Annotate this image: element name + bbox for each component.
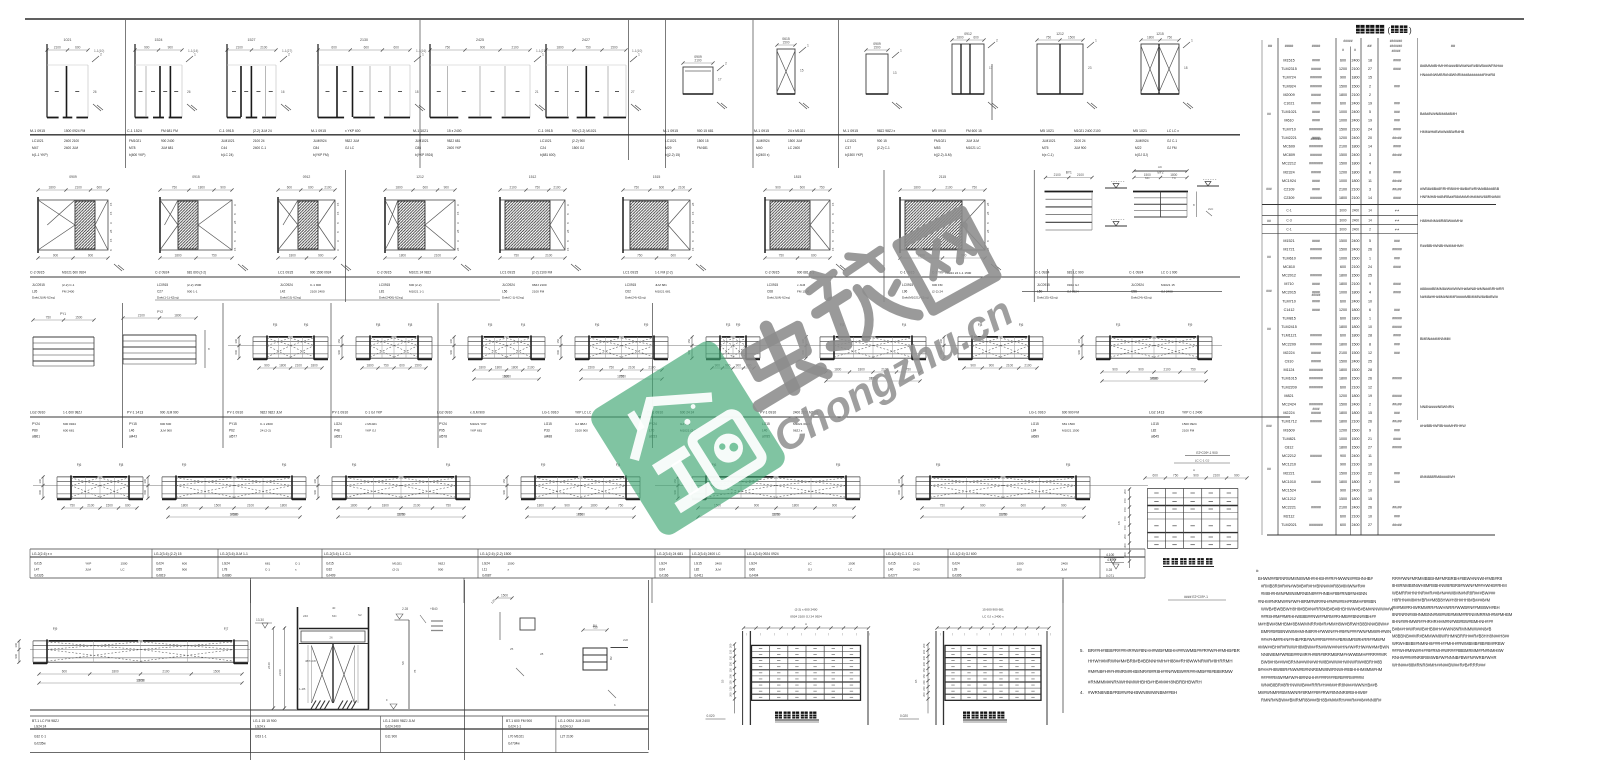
- svg-text:1500: 1500: [1352, 377, 1360, 381]
- svg-text:600: 600: [308, 186, 314, 190]
- svg-text:1500: 1500: [121, 562, 128, 566]
- svg-text:600: 600: [897, 490, 901, 495]
- svg-text:18: 18: [1184, 66, 1188, 70]
- svg-text:B#8#8W#N8M#8#8MH: B#8#8W#N8M#8#8MH: [1420, 112, 1457, 116]
- svg-text:28: 28: [109, 229, 113, 233]
- svg-text:BMR#B#B8NWWMHMHN8R#H#WWN##H#8#: BMR#B#B8NWWMHMHN8R#H#WWN##H#8#N####WN#MM…: [1261, 629, 1391, 634]
- svg-text:150: 150: [1123, 516, 1127, 521]
- svg-text:M2112: M2112: [1283, 514, 1294, 518]
- svg-text:JLM 900: JLM 900: [160, 428, 172, 432]
- svg-text:M47: M47: [32, 146, 39, 150]
- svg-text:#####: #####: [1392, 446, 1402, 450]
- svg-text:0.020: 0.020: [900, 714, 908, 718]
- svg-text:C910: C910: [1285, 360, 1294, 364]
- svg-text:######: ######: [1310, 153, 1322, 157]
- svg-text:40: 40: [332, 606, 336, 610]
- svg-text:150: 150: [729, 680, 733, 685]
- svg-text:1500: 1500: [214, 504, 221, 508]
- svg-text:PY24: PY24: [32, 422, 40, 426]
- svg-text:L82: L82: [694, 568, 700, 572]
- svg-text:1800: 1800: [1339, 377, 1347, 381]
- svg-text:150: 150: [337, 339, 341, 344]
- svg-text:600: 600: [394, 46, 400, 50]
- svg-text:C-1 0924: C-1 0924: [1035, 271, 1049, 275]
- svg-text:1800: 1800: [1339, 274, 1347, 278]
- svg-text:#####: #####: [1392, 248, 1402, 252]
- svg-text:Dwb(24)-f(2xq): Dwb(24)-f(2xq): [1131, 296, 1152, 300]
- svg-text:2400: 2400: [1352, 523, 1360, 527]
- svg-text:C1021: C1021: [1284, 102, 1295, 106]
- svg-text:LC0915: LC0915: [767, 283, 778, 287]
- svg-text:C44: C44: [221, 146, 227, 150]
- svg-text:###: ###: [1394, 308, 1400, 312]
- svg-text:JLM 681: JLM 681: [161, 146, 173, 150]
- svg-text:15: 15: [831, 247, 835, 251]
- svg-text:MC2015: MC2015: [1282, 291, 1296, 295]
- svg-text:MC1212: MC1212: [1282, 497, 1296, 501]
- svg-text:22: 22: [1368, 471, 1372, 475]
- svg-text:1800: 1800: [350, 504, 357, 508]
- svg-text:681 LC 900: 681 LC 900: [1067, 271, 1084, 275]
- svg-text:F|9: F|9: [644, 323, 649, 327]
- svg-text:LC0915: LC0915: [902, 283, 913, 287]
- svg-text:10: 10: [1368, 514, 1372, 518]
- svg-text:###: ###: [1394, 119, 1400, 123]
- svg-text:C-2 0924: C-2 0924: [155, 271, 169, 275]
- svg-text:24: 24: [1368, 127, 1372, 131]
- svg-text:4: 4: [1369, 162, 1371, 166]
- svg-text:GJ C-1: GJ C-1: [1167, 139, 1177, 143]
- svg-text:15: 15: [233, 247, 237, 251]
- svg-text:F|4: F|4: [446, 463, 451, 467]
- svg-text:1515: 1515: [653, 175, 661, 179]
- svg-text:L40: L40: [888, 568, 894, 572]
- svg-text:28: 28: [986, 211, 990, 215]
- svg-text:C-3: C-3: [1286, 219, 1291, 223]
- svg-text:1800: 1800: [956, 36, 963, 40]
- svg-text:M1021 600 0924: M1021 600 0924: [62, 271, 86, 275]
- svg-text:2640: 2640: [267, 662, 271, 669]
- svg-text:12: 12: [1368, 351, 1372, 355]
- svg-text:C-1 900: C-1 900: [310, 283, 321, 287]
- svg-text:681: 681: [265, 562, 270, 566]
- svg-text:LG24: LG24: [482, 562, 490, 566]
- svg-text:Dwb(1-1)-f(2xq): Dwb(1-1)-f(2xq): [157, 296, 179, 300]
- svg-text:####: ####: [1312, 299, 1320, 303]
- svg-text:2100: 2100: [1352, 67, 1360, 71]
- svg-text:25: 25: [510, 647, 514, 651]
- svg-text:750: 750: [972, 186, 978, 190]
- svg-text:2400: 2400: [1352, 360, 1360, 364]
- svg-text:1800: 1800: [1339, 411, 1347, 415]
- svg-text:###: ###: [1394, 428, 1400, 432]
- svg-text:###: ###: [1394, 342, 1400, 346]
- svg-text:C-1 GJ YKP: C-1 GJ YKP: [365, 411, 382, 415]
- svg-text:600: 600: [1340, 334, 1346, 338]
- svg-text:(2-2) 2100 FM: (2-2) 2100 FM: [532, 271, 553, 275]
- svg-text:1800: 1800: [1339, 325, 1347, 329]
- svg-text:TLM815: TLM815: [1282, 317, 1296, 321]
- svg-text:1: 1: [422, 53, 424, 57]
- svg-text:C-1: C-1: [295, 562, 300, 566]
- svg-text:27: 27: [1368, 67, 1372, 71]
- svg-text:2100: 2100: [1339, 506, 1347, 510]
- svg-text:2100: 2100: [1163, 368, 1170, 372]
- svg-text:681 1500: 681 1500: [1062, 422, 1075, 426]
- svg-text:150: 150: [729, 686, 733, 691]
- svg-text:##H#HM#RHN##HB#RB#WN##R8####H#: ##H#HM#RHN##HB#RB#WN##R8####H#BRMMR8RHRR…: [1261, 637, 1386, 642]
- svg-text:600: 600: [62, 670, 68, 674]
- svg-text:####: ####: [1393, 265, 1401, 269]
- svg-text:####: ####: [1312, 179, 1320, 183]
- svg-text:G66: G66: [749, 568, 755, 572]
- svg-text:2100: 2100: [236, 46, 243, 50]
- svg-text:2100: 2100: [434, 254, 441, 258]
- svg-text:TLM1015: TLM1015: [1281, 377, 1297, 381]
- svg-text:900 600: 900 600: [160, 422, 171, 426]
- svg-text:1000: 1000: [1339, 291, 1347, 295]
- svg-text:600: 600: [75, 46, 81, 50]
- svg-text:TLM924: TLM924: [1282, 84, 1296, 88]
- svg-text:2100: 2100: [1006, 364, 1013, 368]
- svg-text:JLM JLM: JLM JLM: [966, 139, 979, 143]
- svg-text:2100: 2100: [1352, 188, 1360, 192]
- svg-text:150: 150: [729, 655, 733, 660]
- svg-text:750: 750: [1173, 474, 1179, 478]
- svg-text:1500: 1500: [1352, 84, 1360, 88]
- svg-text:M8BBNB##MR#BMMWM8WRHMNBRRH##R#: M8BBNB##MR#BMMWM8WRHMNBRRH##R#B8HH8N##H8…: [1392, 634, 1510, 639]
- svg-text:900: 900: [502, 490, 506, 495]
- svg-text:150: 150: [1123, 507, 1127, 512]
- svg-text:LG24: LG24: [334, 422, 342, 426]
- svg-text:600: 600: [399, 364, 405, 368]
- svg-text:BT-1 LC FM 98ZJ: BT-1 LC FM 98ZJ: [32, 719, 59, 723]
- svg-text:150: 150: [502, 479, 506, 484]
- svg-text:20: 20: [1368, 136, 1372, 140]
- svg-text:######: ######: [1310, 274, 1322, 278]
- svg-text:LG-2(3-6) JLM 1-1: LG-2(3-6) JLM 1-1: [220, 552, 248, 556]
- svg-text:L84: L84: [1031, 428, 1037, 432]
- svg-text:21: 21: [535, 90, 539, 94]
- svg-text:16200: 16200: [502, 375, 511, 379]
- svg-text:15: 15: [336, 202, 340, 206]
- svg-text:18: 18: [415, 90, 419, 94]
- svg-text:1000: 1000: [1339, 256, 1347, 260]
- svg-text:900 JLM 900: 900 JLM 900: [160, 411, 179, 415]
- svg-text:2: 2: [996, 39, 998, 43]
- svg-text:2400: 2400: [1352, 102, 1360, 106]
- svg-text:2400: 2400: [1352, 299, 1360, 303]
- svg-text:##: ##: [1267, 255, 1271, 259]
- svg-text:###: ###: [1394, 239, 1400, 243]
- svg-text:LG-2(2-6) x x: LG-2(2-6) x x: [32, 552, 52, 556]
- svg-text:B#8##H#WR#WB#HB8#H#WWN8NRMNMWW: B#8##H#WR#WB#HB8#H#WWN8NRMNMWW#N8#B: [1392, 626, 1492, 631]
- svg-text:27: 27: [1368, 523, 1372, 527]
- svg-text:LG-1 15 15 900: LG-1 15 15 900: [253, 719, 277, 723]
- svg-text:1000: 1000: [1339, 437, 1347, 441]
- svg-text:##: ##: [1267, 219, 1271, 223]
- svg-text:26: 26: [93, 90, 97, 94]
- svg-text:C-1: C-1: [1286, 209, 1291, 213]
- svg-text:24 (2-2): 24 (2-2): [260, 428, 271, 432]
- svg-text:2100: 2100: [527, 366, 534, 370]
- svg-text:x YKP 600: x YKP 600: [345, 129, 361, 133]
- svg-text:2100: 2100: [553, 186, 560, 190]
- svg-text:2400: 2400: [1352, 119, 1360, 123]
- svg-text:GJ277: GJ277: [888, 574, 898, 578]
- svg-text:15 x 2400: 15 x 2400: [447, 129, 462, 133]
- svg-text:L96: L96: [902, 289, 908, 293]
- svg-text:S2: S2: [358, 613, 362, 617]
- svg-text:9: 9: [1369, 282, 1371, 286]
- svg-text:LG24: LG24: [659, 562, 667, 566]
- svg-text:M#HBW#8MHBM#8BNWMNRR#8#R#MMH8W: M#HBW#8MHBM#8BNWMNRR#8#R#MMH8W#BRWHB8BNN…: [1258, 622, 1389, 627]
- svg-text:Dwb(JLM)-f(2xq): Dwb(JLM)-f(2xq): [767, 296, 790, 300]
- svg-text:1800: 1800: [1352, 76, 1360, 80]
- svg-text:1800: 1800: [1352, 291, 1360, 295]
- svg-text:FM1021: FM1021: [934, 139, 946, 143]
- svg-text:####: ####: [1393, 59, 1401, 63]
- svg-text:F|5: F|5: [836, 463, 841, 467]
- svg-text:8#8MM#BHMHHN###BWM#N#R#BWB##WR: 8#8MM#BHMHHN###BWM#N#R#BWB##WRNH##: [1420, 64, 1503, 68]
- svg-text:H88H#NM#8R8BW##MH#: H88H#NM#8R8BW##MH#: [1420, 219, 1463, 223]
- svg-text:##x##: ##x##: [1392, 179, 1401, 183]
- svg-text:600: 600: [1153, 474, 1159, 478]
- svg-text:M1521: M1521: [1283, 239, 1294, 243]
- svg-text:######: ######: [1310, 196, 1322, 200]
- svg-text:GJ411: GJ411: [694, 574, 703, 578]
- svg-text:1500: 1500: [75, 316, 82, 320]
- svg-text:150: 150: [556, 339, 560, 344]
- svg-text:M2009: M2009: [1283, 93, 1294, 97]
- svg-text:78: 78: [413, 669, 417, 673]
- svg-text:C812: C812: [1285, 446, 1294, 450]
- svg-text:750: 750: [1190, 368, 1196, 372]
- svg-text:LC1 0915: LC1 0915: [623, 271, 638, 275]
- svg-text:600: 600: [1017, 568, 1022, 572]
- svg-text:#####: #####: [1392, 377, 1402, 381]
- svg-text:2100: 2100: [1352, 93, 1360, 97]
- svg-text:600: 600: [97, 186, 103, 190]
- svg-text:1500: 1500: [1068, 36, 1075, 40]
- svg-text:28: 28: [986, 202, 990, 206]
- svg-text:1500: 1500: [1352, 342, 1360, 346]
- svg-text:1200: 1200: [1339, 428, 1347, 432]
- svg-text:M29: M29: [665, 146, 672, 150]
- svg-text:PY1: PY1: [60, 312, 66, 316]
- svg-text:M8#WNMR#BMNWNR#8RM##8##RW#8NNN: M8#WNMR#BMNWNR#8RM##8##RW#8NNNR8#BHHW8#: [1258, 690, 1368, 695]
- svg-text:M1021 681: M1021 681: [655, 289, 671, 293]
- svg-text:WHN###88MRNR8#MH##N##BW##R#B#R: WHN###88MRNR8#MH##N##BW##R#B#RRR###: [1392, 662, 1486, 667]
- svg-text:200: 200: [729, 674, 733, 679]
- svg-text:P80: P80: [32, 428, 38, 432]
- svg-text:F|9: F|9: [1188, 323, 1193, 327]
- svg-text:600: 600: [1340, 299, 1346, 303]
- svg-text:M1609: M1609: [1283, 428, 1294, 432]
- svg-text:F|6: F|6: [304, 323, 309, 327]
- svg-text:###: ###: [1394, 480, 1400, 484]
- svg-text:HHWH#MRWN#M#BR8#B#BBNNHMH#H88#: HHWH#MRWN#M#BR8#B#BBNNHMH#H88##RH8WWNRWR…: [1088, 659, 1233, 664]
- svg-text:13750: 13750: [397, 513, 406, 517]
- svg-text:PY15: PY15: [129, 422, 137, 426]
- svg-text:F|8: F|8: [119, 463, 124, 467]
- svg-text:L81: L81: [379, 289, 385, 293]
- svg-text:1: 1: [1369, 256, 1371, 260]
- svg-text:1800: 1800: [1147, 36, 1154, 40]
- svg-text:C56: C56: [1131, 289, 1137, 293]
- svg-text:FM 681 FM: FM 681 FM: [161, 129, 178, 133]
- svg-text:1800: 1800: [1352, 325, 1360, 329]
- svg-text:26: 26: [1368, 506, 1372, 510]
- svg-text:1: 1: [900, 49, 902, 53]
- svg-text:PY-1 0910: PY-1 0910: [332, 411, 348, 415]
- svg-text:26: 26: [1368, 377, 1372, 381]
- svg-text:2100: 2100: [1352, 471, 1360, 475]
- svg-text:G24: G24: [659, 568, 665, 572]
- svg-text:26: 26: [1368, 248, 1372, 252]
- svg-text:####: ####: [1312, 308, 1320, 312]
- svg-text:GJ235w: GJ235w: [34, 742, 46, 746]
- svg-text:MC809: MC809: [1283, 153, 1295, 157]
- svg-text:M610: M610: [1284, 119, 1293, 123]
- svg-text:TLM2221: TLM2221: [1281, 136, 1297, 140]
- svg-text:b(YKP 0924): b(YKP 0924): [415, 153, 433, 157]
- svg-text:1500: 1500: [1339, 497, 1347, 501]
- svg-text:26: 26: [1368, 420, 1372, 424]
- svg-text:2100: 2100: [295, 364, 302, 368]
- svg-text:b(1-1 YKP): b(1-1 YKP): [32, 153, 48, 157]
- svg-text:1500: 1500: [501, 594, 508, 598]
- svg-text:1800: 1800: [48, 186, 55, 190]
- svg-text:GJ24: GJ24: [156, 562, 164, 566]
- svg-text:b(LC 24): b(LC 24): [221, 153, 233, 157]
- svg-text:GJ: GJ: [808, 568, 812, 572]
- svg-text:1-1 600 98ZJ: 1-1 600 98ZJ: [63, 411, 82, 415]
- svg-text:2100: 2100: [1339, 145, 1347, 149]
- svg-text:900: 900: [438, 568, 443, 572]
- svg-text:M-1 1021: M-1 1021: [413, 129, 428, 133]
- svg-text:2100: 2100: [1352, 420, 1360, 424]
- svg-text:HMM#H#BW#W#8B#R#HB: HMM#H#BW#W#8B#R#HB: [1420, 130, 1465, 134]
- svg-text:2100: 2100: [1339, 351, 1347, 355]
- svg-text:TLM2415: TLM2415: [1281, 325, 1297, 329]
- svg-text:(2-2) 24: (2-2) 24: [932, 289, 943, 293]
- svg-text:15: 15: [336, 211, 340, 215]
- svg-text:1500: 1500: [873, 46, 880, 50]
- svg-text:LG2 0910: LG2 0910: [437, 411, 452, 415]
- svg-text:(: (: [1388, 26, 1391, 35]
- svg-text:LC0915: LC0915: [379, 283, 390, 287]
- svg-text:+B40: +B40: [430, 607, 438, 611]
- svg-text:b(2400 x): b(2400 x): [756, 153, 769, 157]
- svg-text:16200: 16200: [576, 513, 585, 517]
- svg-text:####: ####: [1312, 239, 1320, 243]
- svg-text:#:: #:: [1256, 569, 1259, 573]
- svg-text:C37: C37: [845, 146, 851, 150]
- svg-text:200: 200: [922, 649, 926, 654]
- svg-text:1527: 1527: [248, 38, 256, 42]
- svg-text:L27 2100: L27 2100: [560, 735, 574, 739]
- svg-text:98ZJ 681: 98ZJ 681: [447, 139, 461, 143]
- svg-text:Dwb(C-1)-f(2xq): Dwb(C-1)-f(2xq): [502, 296, 524, 300]
- svg-text:2400: 2400: [1352, 136, 1360, 140]
- svg-text:900: 900: [832, 504, 838, 508]
- svg-text:1: 1: [542, 53, 544, 57]
- svg-text:####: ####: [1393, 282, 1401, 286]
- svg-text:(2-2) C-1: (2-2) C-1: [62, 283, 75, 287]
- svg-text:JLM 681: JLM 681: [655, 283, 667, 287]
- svg-text:####: ####: [1393, 291, 1401, 295]
- svg-text:JLC0924: JLC0924: [280, 283, 293, 287]
- svg-text:##R8H#M##MRHHWB8B##NW##MRM#RHM: ##R8H#M##MRHHWB8B##NW##MRM#RHMB##BNN#8BH…: [1261, 614, 1377, 619]
- svg-text:(2-2) JLM 24: (2-2) JLM 24: [253, 129, 272, 133]
- svg-text:Dwb(GJ)-f(2xq): Dwb(GJ)-f(2xq): [280, 296, 301, 300]
- svg-text:1800: 1800: [913, 186, 920, 190]
- svg-text:1-1 FM (2-2): 1-1 FM (2-2): [655, 271, 673, 275]
- svg-text:BR##H#8B8#R###HR#W#8NHH#WB#MBH: BR##H#8B8#R###HR#W#8NHH#WB#MBHH##NWMB###…: [1088, 648, 1240, 653]
- svg-text:600 900 FM: 600 900 FM: [1062, 411, 1079, 415]
- svg-text:150: 150: [922, 668, 926, 673]
- svg-text:600: 600: [800, 186, 806, 190]
- svg-text:1815: 1815: [794, 175, 802, 179]
- svg-text:18: 18: [1368, 59, 1372, 63]
- svg-text:#####: #####: [1311, 102, 1321, 106]
- svg-text:1800: 1800: [556, 46, 563, 50]
- svg-text:GJ409: GJ409: [326, 574, 336, 578]
- svg-text:TLM1021: TLM1021: [1281, 110, 1297, 114]
- svg-text:900: 900: [318, 254, 324, 258]
- svg-text:#######: #######: [1309, 127, 1323, 131]
- svg-text:###: ###: [1266, 187, 1272, 191]
- svg-text:LG24 24: LG24 24: [34, 725, 46, 729]
- svg-text:2100 FM: 2100 FM: [532, 289, 545, 293]
- svg-text:######: ######: [1310, 342, 1322, 346]
- svg-text:LG24 x: LG24 x: [255, 725, 266, 729]
- svg-text:150: 150: [729, 661, 733, 666]
- svg-text:900: 900: [337, 350, 341, 355]
- svg-text:1800: 1800: [112, 670, 119, 674]
- svg-text:##x##: ##x##: [1392, 523, 1401, 527]
- svg-text:F|9: F|9: [736, 323, 741, 327]
- svg-text:C-2 0915: C-2 0915: [30, 271, 44, 275]
- svg-text:11: 11: [1368, 454, 1372, 458]
- svg-text:750: 750: [514, 254, 520, 258]
- svg-text:C-2 0915: C-2 0915: [765, 271, 779, 275]
- svg-text:#MW##BH#R#RWWH8MBW##RN#WW##N#H: #MW##BH#R#RWWH8MBW##RN#WW##N#HN#W#RHW#W#…: [1258, 644, 1389, 649]
- svg-text:1800: 1800: [1339, 368, 1347, 372]
- svg-text:1800: 1800: [1352, 411, 1360, 415]
- svg-text:900 2400: 900 2400: [161, 139, 175, 143]
- svg-text:2100: 2100: [138, 314, 145, 318]
- svg-text:900 1500 0924: 900 1500 0924: [310, 271, 331, 275]
- svg-text:4B7xC8: 4B7xC8: [305, 659, 316, 663]
- svg-text:###: ###: [1394, 411, 1400, 415]
- svg-text:###WH#MNW#H##8#RMH#WR###88BMRM: ###WH#MNW#H##8#RMH#WR###88BMRMM##N#NMH8W: [1392, 648, 1504, 653]
- svg-text:900: 900: [980, 504, 986, 508]
- svg-text:#####: #####: [1311, 506, 1321, 510]
- svg-text:LG24: LG24: [222, 562, 230, 566]
- svg-text:900: 900: [1340, 454, 1346, 458]
- svg-text:13: 13: [893, 71, 897, 75]
- svg-text:27: 27: [1368, 446, 1372, 450]
- svg-text:1800: 1800: [792, 504, 799, 508]
- svg-text:G32: G32: [326, 568, 332, 572]
- svg-text:M5 0915: M5 0915: [932, 129, 946, 133]
- svg-text:0909: 0909: [69, 175, 77, 179]
- svg-text:(2-2) 1500: (2-2) 1500: [187, 283, 202, 287]
- svg-text:2100: 2100: [678, 186, 685, 190]
- svg-text:GJ326: GJ326: [34, 574, 44, 578]
